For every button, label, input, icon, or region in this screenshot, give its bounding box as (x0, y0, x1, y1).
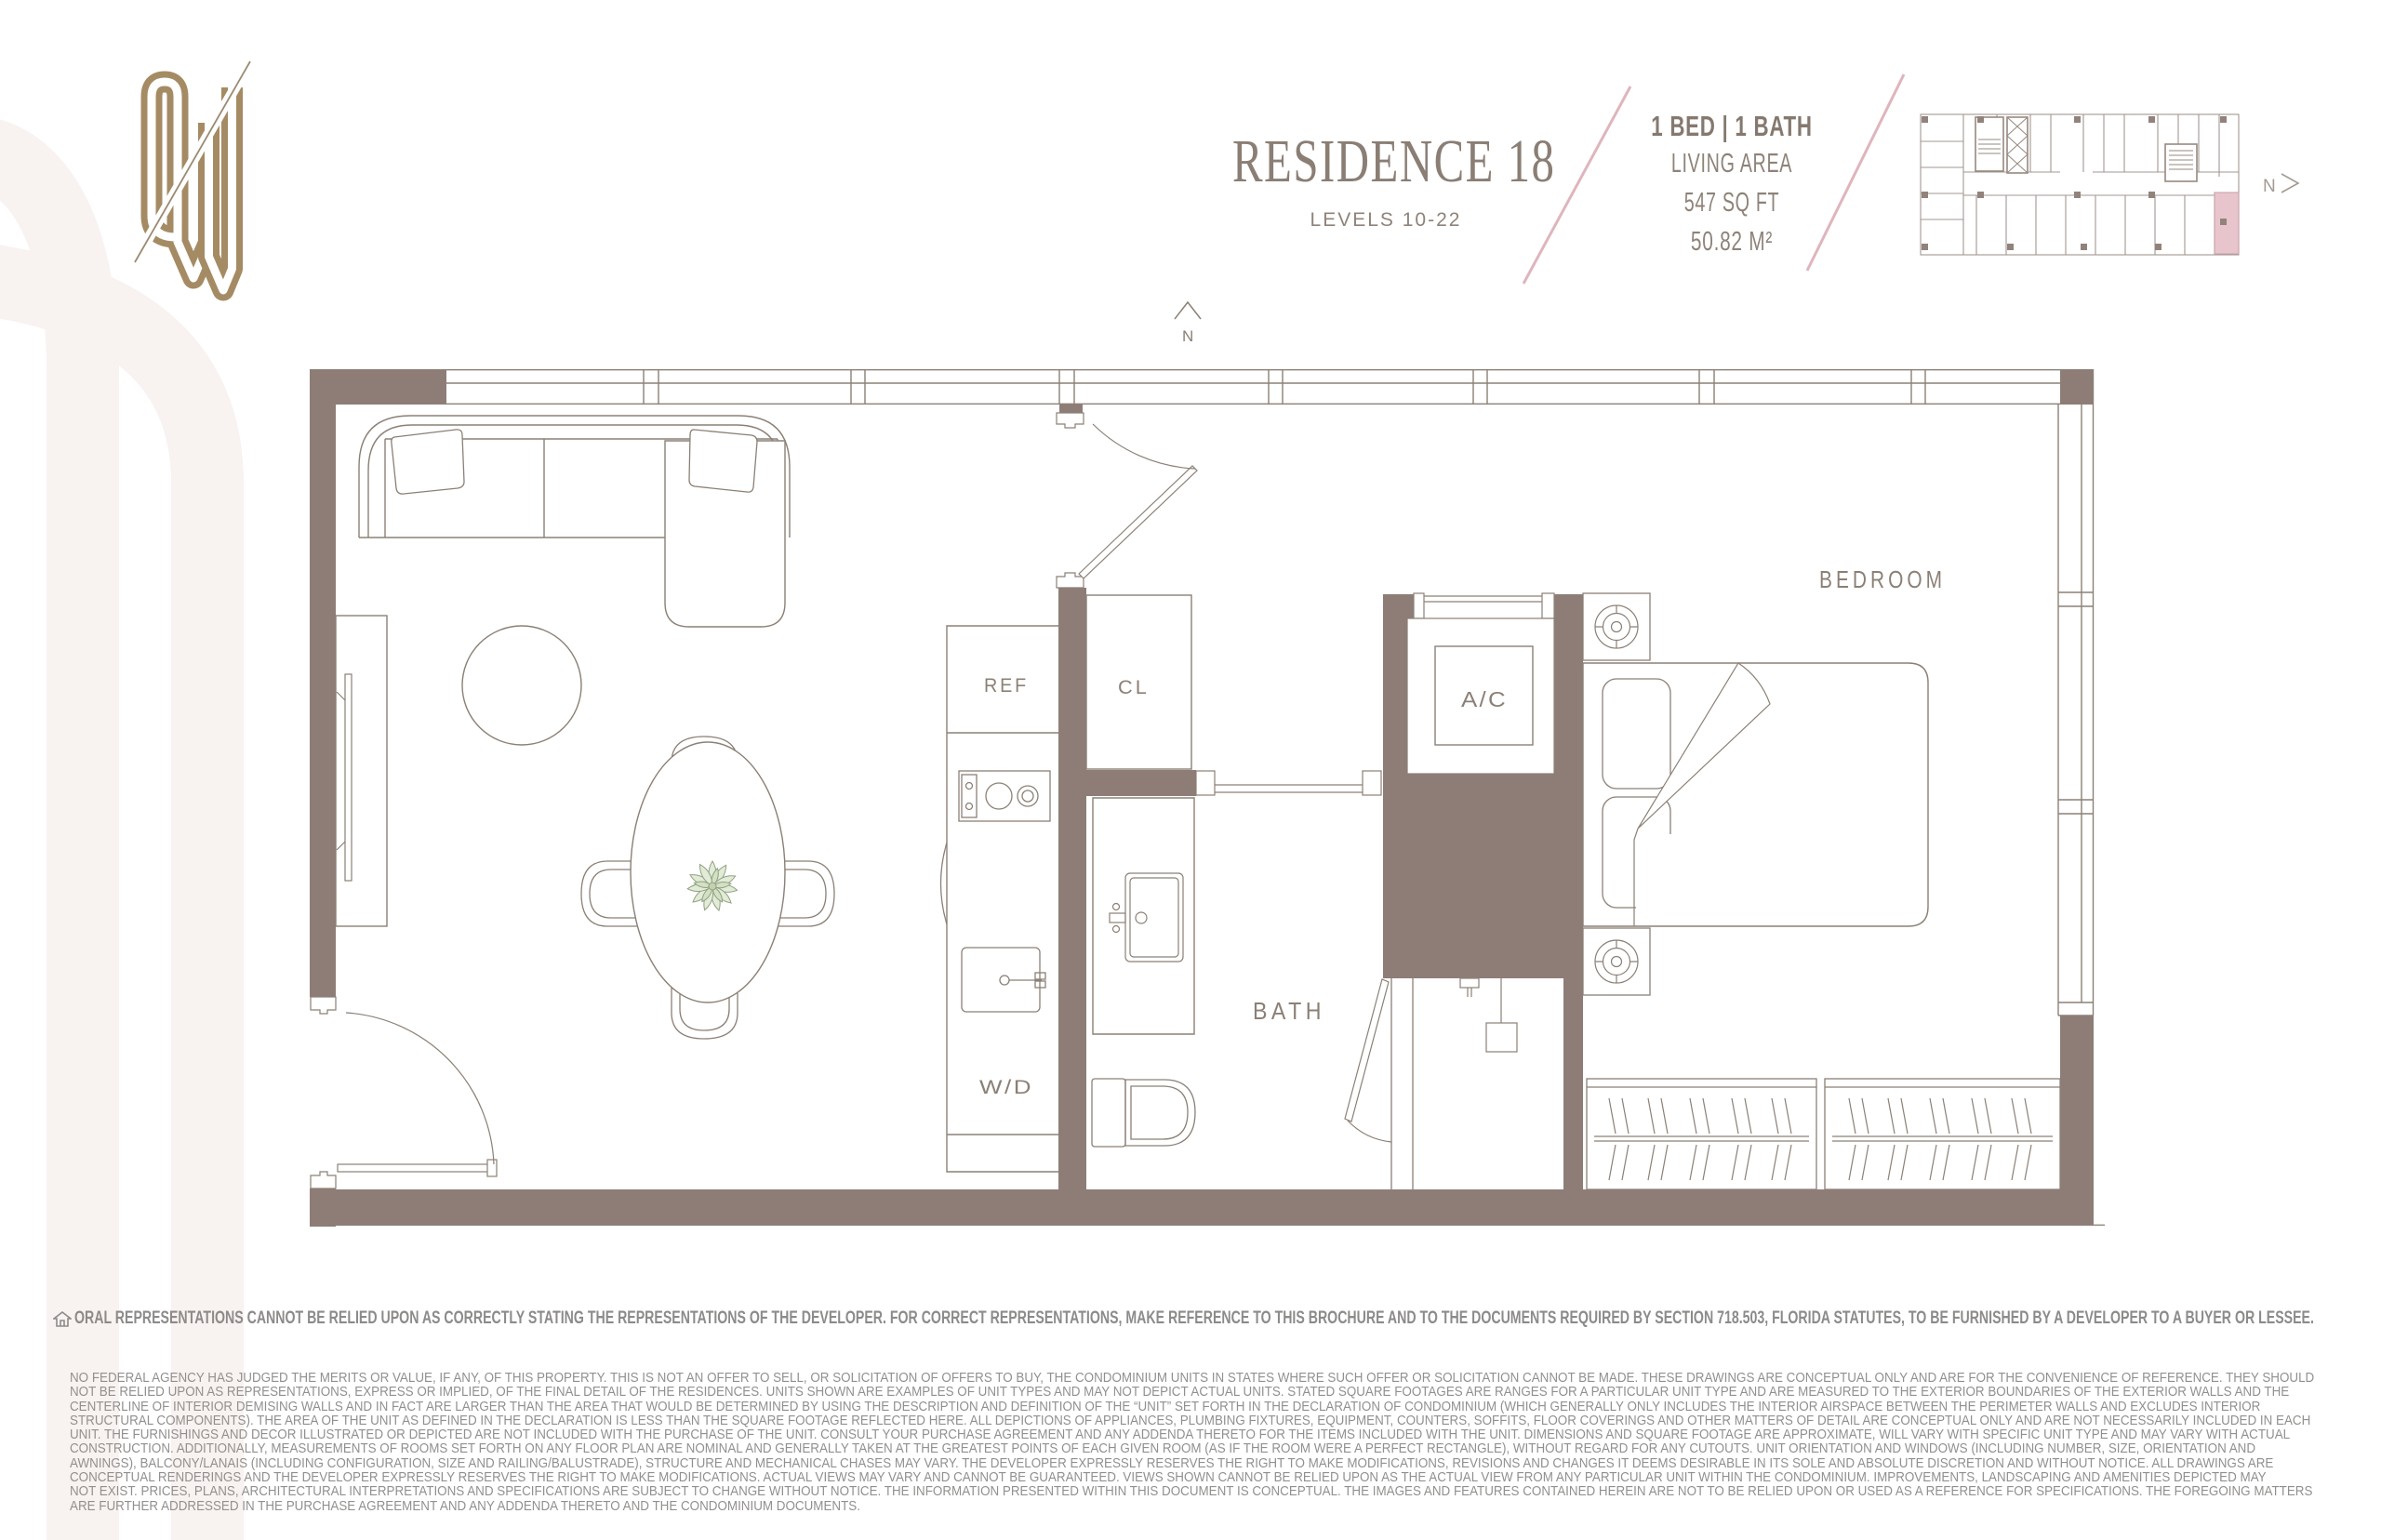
svg-text:CL: CL (1118, 677, 1150, 698)
svg-text:N: N (2263, 177, 2276, 196)
svg-text:BATH: BATH (1253, 997, 1325, 1025)
svg-text:W/D: W/D (979, 1077, 1033, 1098)
svg-text:REF: REF (984, 675, 1029, 697)
svg-text:A/C: A/C (1461, 687, 1508, 711)
svg-text:N: N (1182, 327, 1193, 345)
svg-text:BEDROOM: BEDROOM (1819, 565, 1946, 593)
